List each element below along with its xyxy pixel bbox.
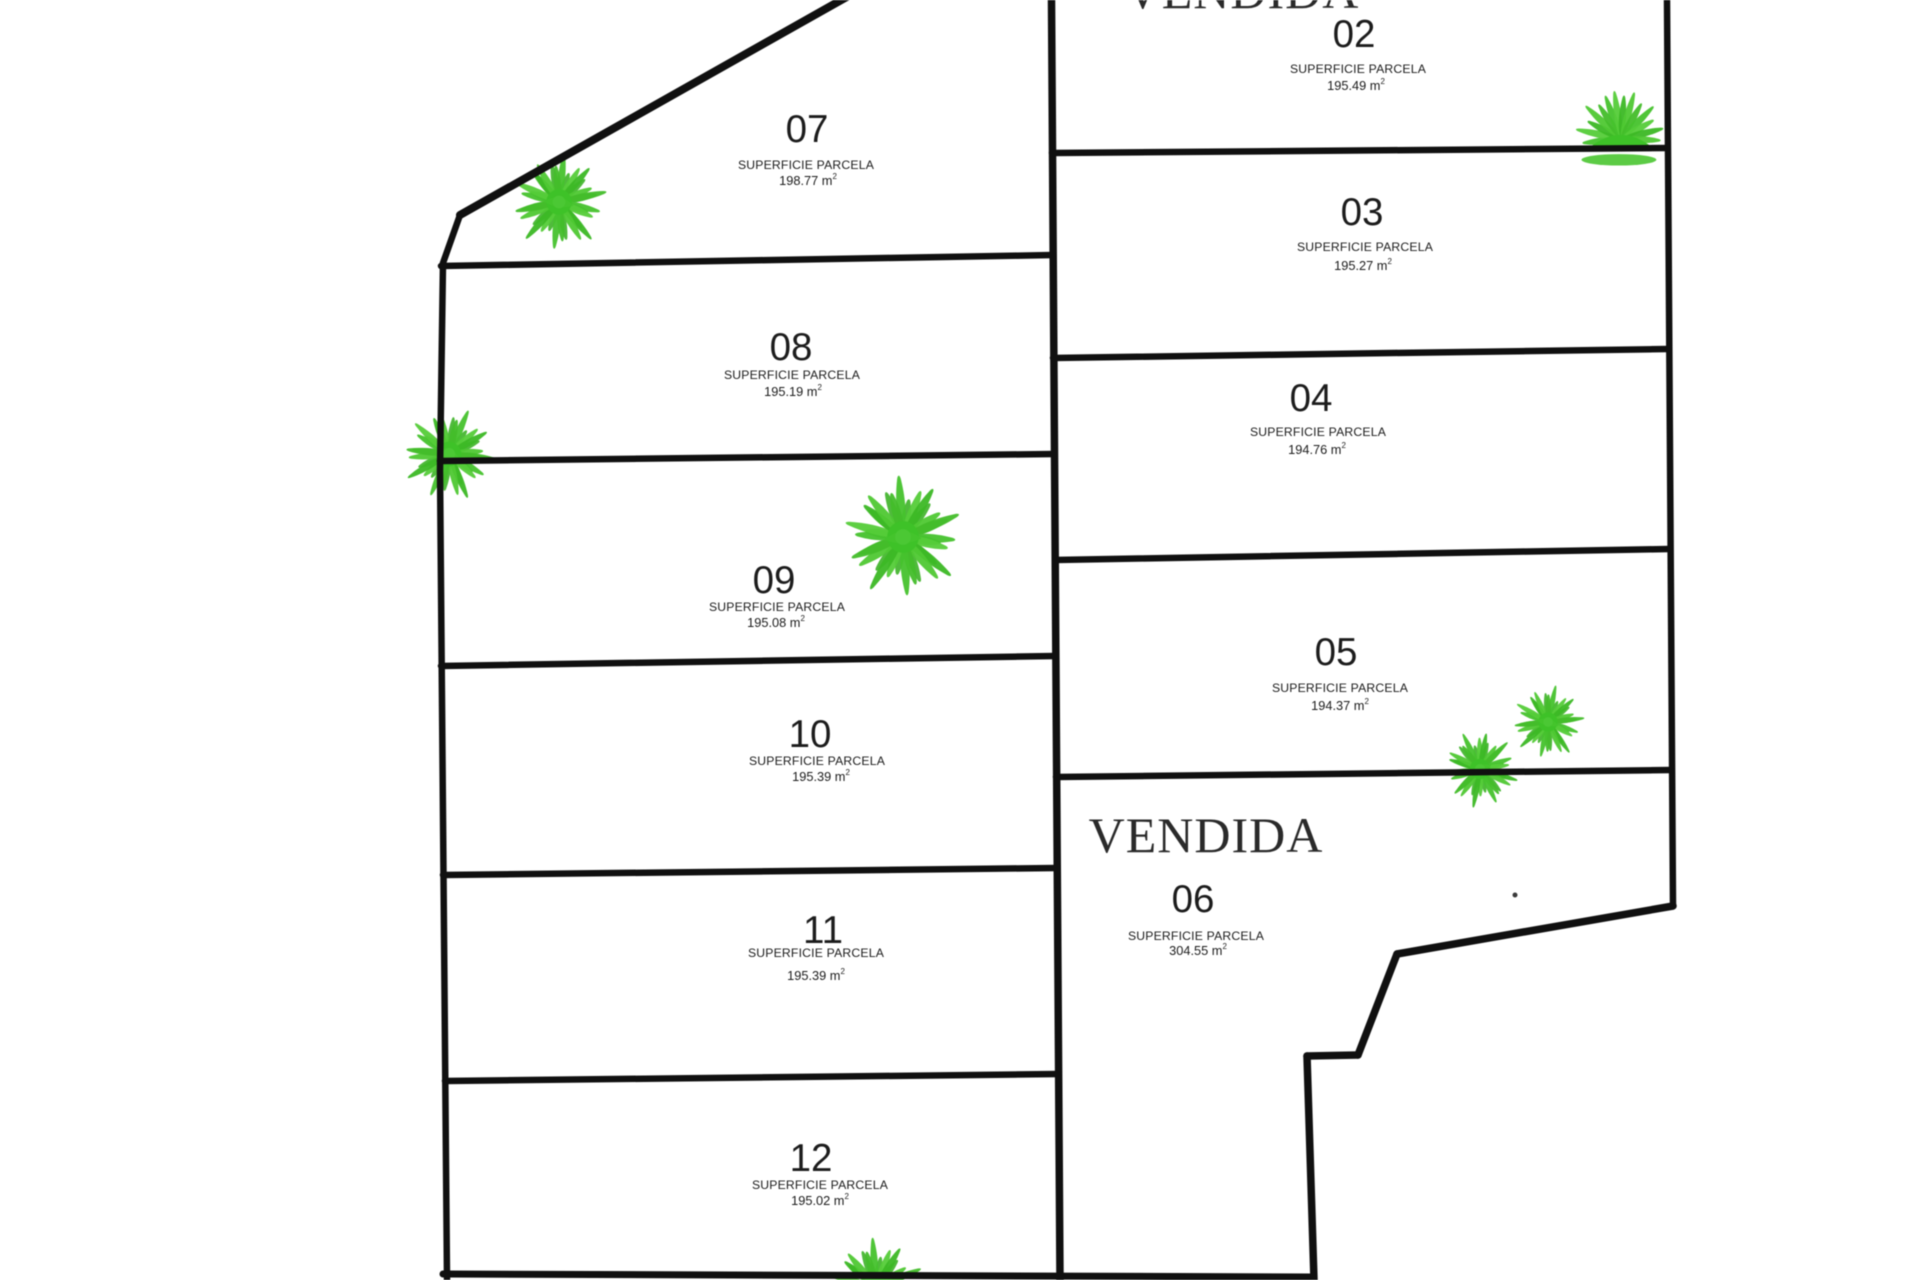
svg-text:VENDIDA: VENDIDA xyxy=(1089,807,1324,863)
svg-text:194.37 m2: 194.37 m2 xyxy=(1311,697,1369,713)
svg-text:03: 03 xyxy=(1341,191,1384,234)
svg-text:VENDIDA: VENDIDA xyxy=(1125,0,1360,19)
svg-text:304.55 m2: 304.55 m2 xyxy=(1169,942,1227,958)
svg-text:195.27 m2: 195.27 m2 xyxy=(1334,257,1392,273)
svg-text:09: 09 xyxy=(753,559,796,602)
svg-text:05: 05 xyxy=(1315,631,1358,674)
svg-text:195.49 m2: 195.49 m2 xyxy=(1327,77,1385,93)
svg-text:02: 02 xyxy=(1333,13,1376,56)
svg-text:SUPERFICIE PARCELA: SUPERFICIE PARCELA xyxy=(738,158,875,172)
svg-text:04: 04 xyxy=(1290,377,1333,420)
svg-text:SUPERFICIE PARCELA: SUPERFICIE PARCELA xyxy=(748,946,885,960)
svg-text:SUPERFICIE PARCELA: SUPERFICIE PARCELA xyxy=(724,368,861,382)
svg-text:194.76 m2: 194.76 m2 xyxy=(1288,441,1346,457)
svg-text:SUPERFICIE PARCELA: SUPERFICIE PARCELA xyxy=(709,600,846,614)
svg-text:SUPERFICIE PARCELA: SUPERFICIE PARCELA xyxy=(1128,929,1265,943)
svg-text:07: 07 xyxy=(786,108,829,151)
svg-text:SUPERFICIE PARCELA: SUPERFICIE PARCELA xyxy=(752,1178,889,1192)
svg-text:SUPERFICIE PARCELA: SUPERFICIE PARCELA xyxy=(1250,425,1387,439)
svg-text:12: 12 xyxy=(790,1137,833,1180)
svg-text:195.39 m2: 195.39 m2 xyxy=(787,967,845,983)
svg-text:195.02 m2: 195.02 m2 xyxy=(791,1192,849,1208)
svg-text:SUPERFICIE PARCELA: SUPERFICIE PARCELA xyxy=(749,754,886,768)
svg-text:195.19 m2: 195.19 m2 xyxy=(764,383,822,399)
svg-text:06: 06 xyxy=(1172,878,1215,921)
svg-text:SUPERFICIE PARCELA: SUPERFICIE PARCELA xyxy=(1297,240,1434,254)
svg-text:195.08 m2: 195.08 m2 xyxy=(747,614,805,630)
svg-text:SUPERFICIE PARCELA: SUPERFICIE PARCELA xyxy=(1272,681,1409,695)
svg-text:195.39 m2: 195.39 m2 xyxy=(792,768,850,784)
svg-text:198.77 m2: 198.77 m2 xyxy=(779,172,837,188)
svg-text:10: 10 xyxy=(789,713,832,756)
svg-text:08: 08 xyxy=(770,326,813,369)
svg-text:SUPERFICIE PARCELA: SUPERFICIE PARCELA xyxy=(1290,62,1427,76)
